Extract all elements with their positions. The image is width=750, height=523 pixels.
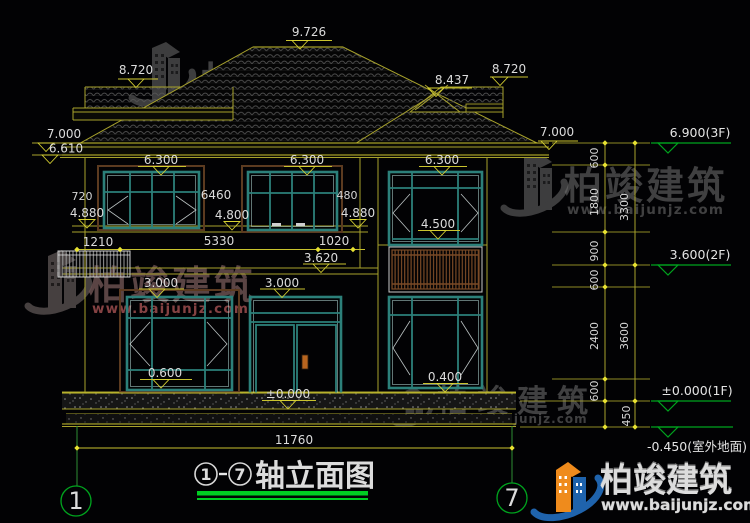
dim-3000-left: 3.000 [144,276,178,290]
cad-elevation-screenshot: 柏竣建筑 www.baijunjz.com 柏竣建筑 www.baijunjz.… [0,0,750,523]
dim-2400: 2400 [588,322,601,350]
dim-eave-left-6610: 6.610 [49,142,83,156]
brand-logo-company: 柏竣建筑 [600,461,732,500]
brand-logo-icon [534,462,601,518]
axis-bubble-7: 7 [497,483,527,513]
dim-right-dormer-ridge: 8.437 [435,73,469,87]
title-axis-to: 7 [234,465,245,484]
door-handle [302,355,308,369]
dim-3300: 3300 [618,193,631,221]
dim-900: 900 [588,241,601,262]
axis-bubble-1: 1 [61,486,91,516]
dim-5330: 5330 [204,234,235,248]
title-underline-thin [197,498,368,500]
dim-600-top: 600 [588,148,601,169]
dim-480: 480 [337,189,358,202]
title-underline-thick [197,491,368,496]
tower-railing [389,247,482,292]
dim-450: 450 [620,406,633,427]
dim-1020: 1020 [319,234,350,248]
dim-600-low: 600 [588,381,601,402]
dim-left-dormer: 8.720 [119,63,153,77]
axis-number-right: 7 [504,484,519,512]
dim-1800: 1800 [588,188,601,216]
dim-right-dormer: 8.720 [492,62,526,76]
brand-logo: 柏竣建筑 柏竣建筑 www.baijunjz.com [534,459,750,518]
dim-4800: 4.800 [215,208,249,222]
dim-6460: 6460 [201,188,232,202]
dim-0400: 0.400 [428,370,462,384]
elevation-drawing: 柏竣建筑 www.baijunjz.com 柏竣建筑 www.baijunjz.… [0,0,750,523]
dim-3620: 3.620 [304,251,338,265]
watermark-url: www.baijunjz.com [92,301,249,317]
dim-0600: 0.600 [148,366,182,380]
level-3f: 6.900(3F) [670,125,731,140]
dim-0000: ±0.000 [266,387,310,401]
watermark-right: 柏竣建筑 www.baijunjz.com [504,152,728,218]
dim-3600: 3600 [618,322,631,350]
title-axis-from: 1 [200,465,211,484]
dim-4880-right: 4.880 [341,206,375,220]
dim-1210: 1210 [83,235,114,249]
brand-logo-url: www.baijunjz.com [601,496,750,514]
dim-ridge: 9.726 [292,25,326,39]
dim-3000-right: 3.000 [265,276,299,290]
title-text: 轴立面图 [255,459,375,494]
level-2f: 3.600(2F) [670,247,731,262]
dim-soffit-right: 6.300 [425,153,459,167]
dim-soffit-mid: 6.300 [290,153,324,167]
dim-eave-right-7000: 7.000 [540,125,574,139]
dim-total-width: 11760 [275,433,313,447]
dim-600-mid: 600 [588,270,601,291]
window-2f-tower [389,172,482,245]
dim-4500: 4.500 [421,217,455,231]
dim-soffit-left: 6.300 [144,153,178,167]
drawing-title: 1 7 轴立面图 [195,459,375,500]
balcony-railing-left [58,251,130,277]
watermark-logo-icon [504,152,565,213]
level-1f: ±0.000(1F) [661,383,732,398]
dim-720: 720 [72,190,93,203]
level-outdoor-ground: -0.450(室外地面) [647,439,747,454]
window-2f-mid [242,166,342,232]
dim-eave-left-7000: 7.000 [47,127,81,141]
axis-number-left: 1 [68,487,83,515]
window-2f-left [98,166,204,230]
dim-4880-left: 4.880 [70,206,104,220]
